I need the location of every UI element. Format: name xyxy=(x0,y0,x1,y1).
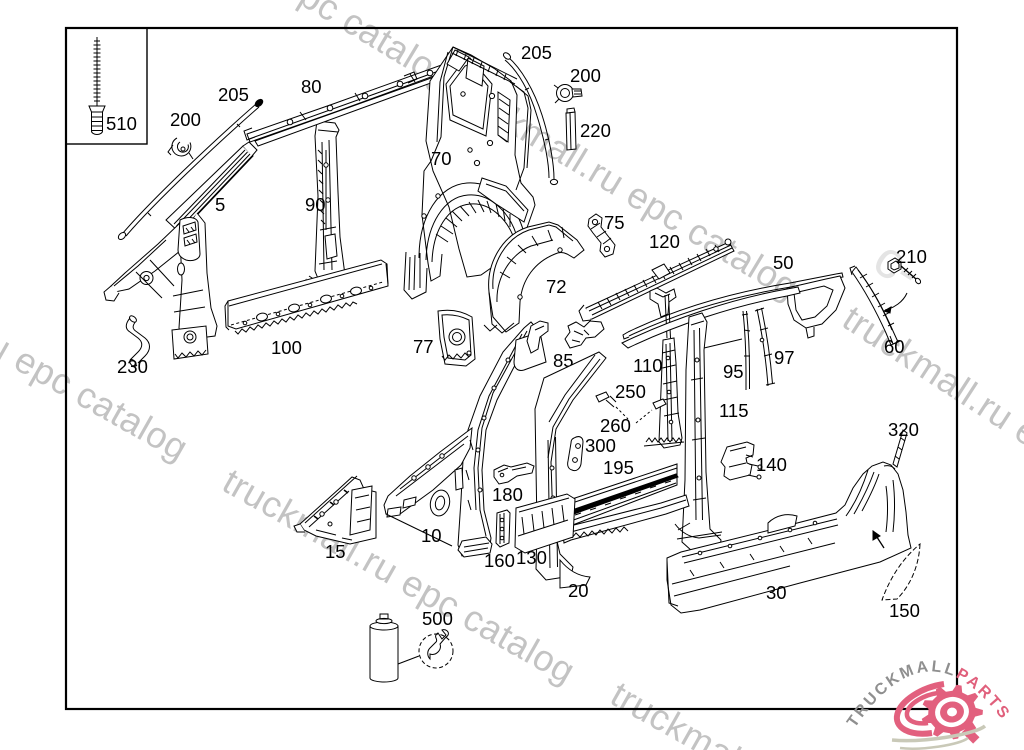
svg-text:205: 205 xyxy=(218,84,249,105)
svg-text:200: 200 xyxy=(570,65,601,86)
svg-text:truckmall.ru epc catalog: truckmall.ru epc catalog xyxy=(604,673,970,750)
svg-text:130: 130 xyxy=(516,547,547,568)
svg-text:250: 250 xyxy=(615,381,646,402)
svg-text:80: 80 xyxy=(301,76,322,97)
svg-text:115: 115 xyxy=(719,400,749,421)
svg-text:210: 210 xyxy=(896,246,927,267)
svg-text:100: 100 xyxy=(271,337,302,358)
svg-text:120: 120 xyxy=(649,231,680,252)
svg-text:230: 230 xyxy=(117,356,148,377)
svg-text:50: 50 xyxy=(773,252,794,273)
svg-text:77: 77 xyxy=(413,336,434,357)
svg-text:75: 75 xyxy=(604,212,625,233)
svg-text:110: 110 xyxy=(633,355,663,376)
svg-text:205: 205 xyxy=(521,42,552,63)
svg-text:truckmall.ru epc catalog: truckmall.ru epc catalog xyxy=(0,237,195,468)
svg-text:20: 20 xyxy=(568,580,589,601)
svg-text:510: 510 xyxy=(106,113,137,134)
svg-text:260: 260 xyxy=(600,415,631,436)
svg-text:72: 72 xyxy=(546,276,567,297)
svg-text:140: 140 xyxy=(756,454,787,475)
svg-text:500: 500 xyxy=(422,608,453,629)
svg-text:70: 70 xyxy=(431,148,452,169)
svg-text:10: 10 xyxy=(421,525,442,546)
svg-text:160: 160 xyxy=(484,550,515,571)
svg-text:95: 95 xyxy=(723,361,744,382)
svg-text:180: 180 xyxy=(492,484,523,505)
svg-text:220: 220 xyxy=(580,120,611,141)
svg-text:150: 150 xyxy=(889,600,920,621)
svg-text:15: 15 xyxy=(325,541,346,562)
svg-text:320: 320 xyxy=(888,419,919,440)
svg-text:300: 300 xyxy=(585,435,616,456)
svg-text:60: 60 xyxy=(884,336,905,357)
svg-text:5: 5 xyxy=(215,194,225,215)
svg-text:200: 200 xyxy=(170,109,201,130)
svg-text:30: 30 xyxy=(766,582,787,603)
svg-text:90: 90 xyxy=(305,194,326,215)
svg-text:97: 97 xyxy=(774,347,795,368)
svg-text:195: 195 xyxy=(603,457,634,478)
